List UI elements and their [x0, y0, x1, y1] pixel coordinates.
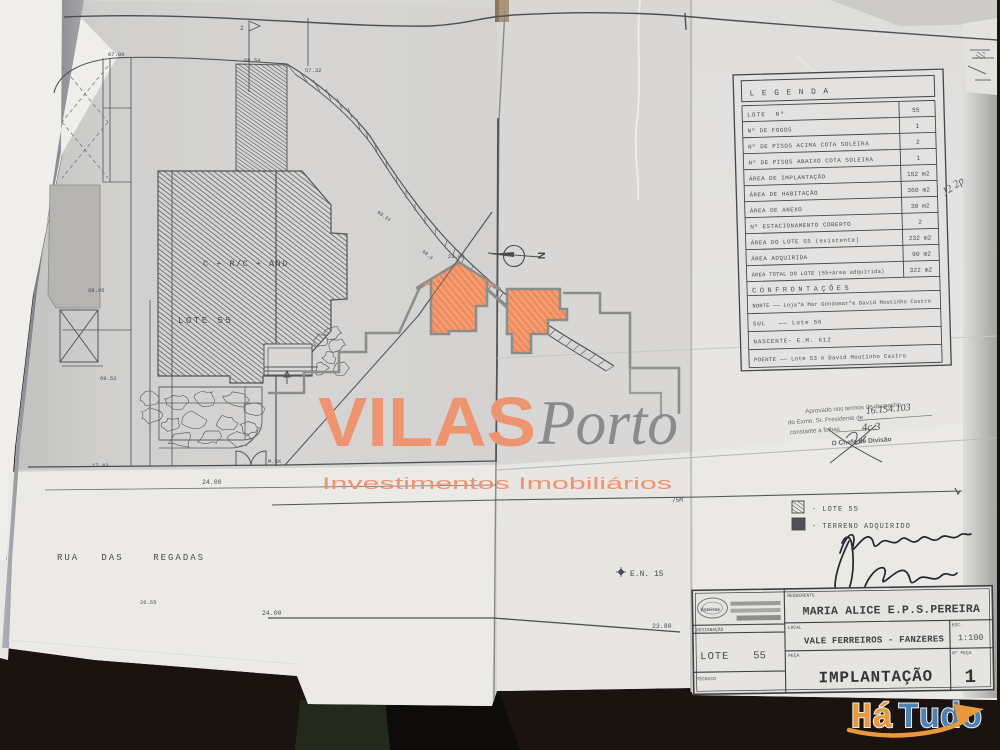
svg-text:VILAS: VILAS — [318, 383, 536, 461]
svg-text:2: 2 — [916, 139, 920, 146]
svg-text:55: 55 — [912, 107, 920, 114]
svg-text:23.80: 23.80 — [652, 623, 672, 630]
svg-text:69.52: 69.52 — [100, 375, 117, 382]
svg-text:LOTE 55: LOTE 55 — [178, 316, 233, 326]
svg-text:Esteiras: Esteiras — [700, 607, 720, 613]
svg-text:232 m2: 232 m2 — [909, 235, 932, 243]
svg-text:360 m2: 360 m2 — [907, 187, 930, 195]
svg-text:C + R/C + AND: C + R/C + AND — [203, 259, 289, 269]
svg-text:26.55: 26.55 — [140, 599, 157, 606]
svg-text:67.80: 67.80 — [108, 51, 125, 58]
svg-text:68.54: 68.54 — [244, 57, 261, 64]
svg-text:LOTE Nº: LOTE Nº — [747, 111, 785, 119]
svg-text:24.00: 24.00 — [202, 479, 222, 486]
svg-text:ESC.: ESC. — [952, 622, 963, 628]
svg-text:M.5X: M.5X — [268, 458, 282, 465]
svg-text:E.N. 15: E.N. 15 — [630, 570, 664, 579]
svg-text:55: 55 — [753, 650, 766, 662]
svg-text:Investimentos Imobiliários: Investimentos Imobiliários — [322, 475, 672, 493]
svg-text:Nº DE FOGOS: Nº DE FOGOS — [748, 126, 793, 134]
svg-text:68.95: 68.95 — [88, 287, 105, 294]
svg-text:152 m2: 152 m2 — [907, 171, 930, 179]
svg-text:57.32: 57.32 — [305, 67, 322, 74]
svg-text:1: 1 — [916, 155, 920, 162]
svg-text:1:100: 1:100 — [958, 633, 984, 643]
svg-text:LOTE: LOTE — [700, 651, 729, 663]
svg-text:- LOTE 55: - LOTE 55 — [812, 506, 859, 514]
svg-text:1: 1 — [964, 666, 976, 688]
svg-text:4c.3: 4c.3 — [861, 421, 881, 434]
svg-text:LOCAL: LOCAL — [788, 625, 802, 631]
svg-text:17.43: 17.43 — [92, 462, 109, 469]
svg-text:Nº PEÇA: Nº PEÇA — [952, 650, 972, 656]
svg-text:- TERRENO ADQUIRIDO: - TERRENO ADQUIRIDO — [812, 523, 911, 531]
svg-text:IMPLANTAÇÃO: IMPLANTAÇÃO — [818, 667, 933, 688]
svg-text:ÁREA DE ANEXO: ÁREA DE ANEXO — [750, 206, 803, 214]
svg-text:75M: 75M — [672, 497, 683, 504]
svg-text:1: 1 — [915, 123, 919, 130]
svg-text:REQUERENTE: REQUERENTE — [787, 592, 815, 598]
svg-text:RUA DAS REGADAS: RUA DAS REGADAS — [57, 553, 205, 563]
svg-text:322 m2: 322 m2 — [909, 266, 932, 274]
svg-text:PEÇA: PEÇA — [788, 653, 799, 659]
svg-text:30 m2: 30 m2 — [911, 203, 930, 211]
svg-text:2: 2 — [240, 25, 244, 32]
svg-text:2: 2 — [918, 219, 922, 226]
svg-text:Porto: Porto — [537, 387, 678, 458]
svg-text:N: N — [535, 252, 546, 259]
svg-text:90 m2: 90 m2 — [912, 251, 931, 259]
svg-text:24.00: 24.00 — [262, 610, 282, 617]
